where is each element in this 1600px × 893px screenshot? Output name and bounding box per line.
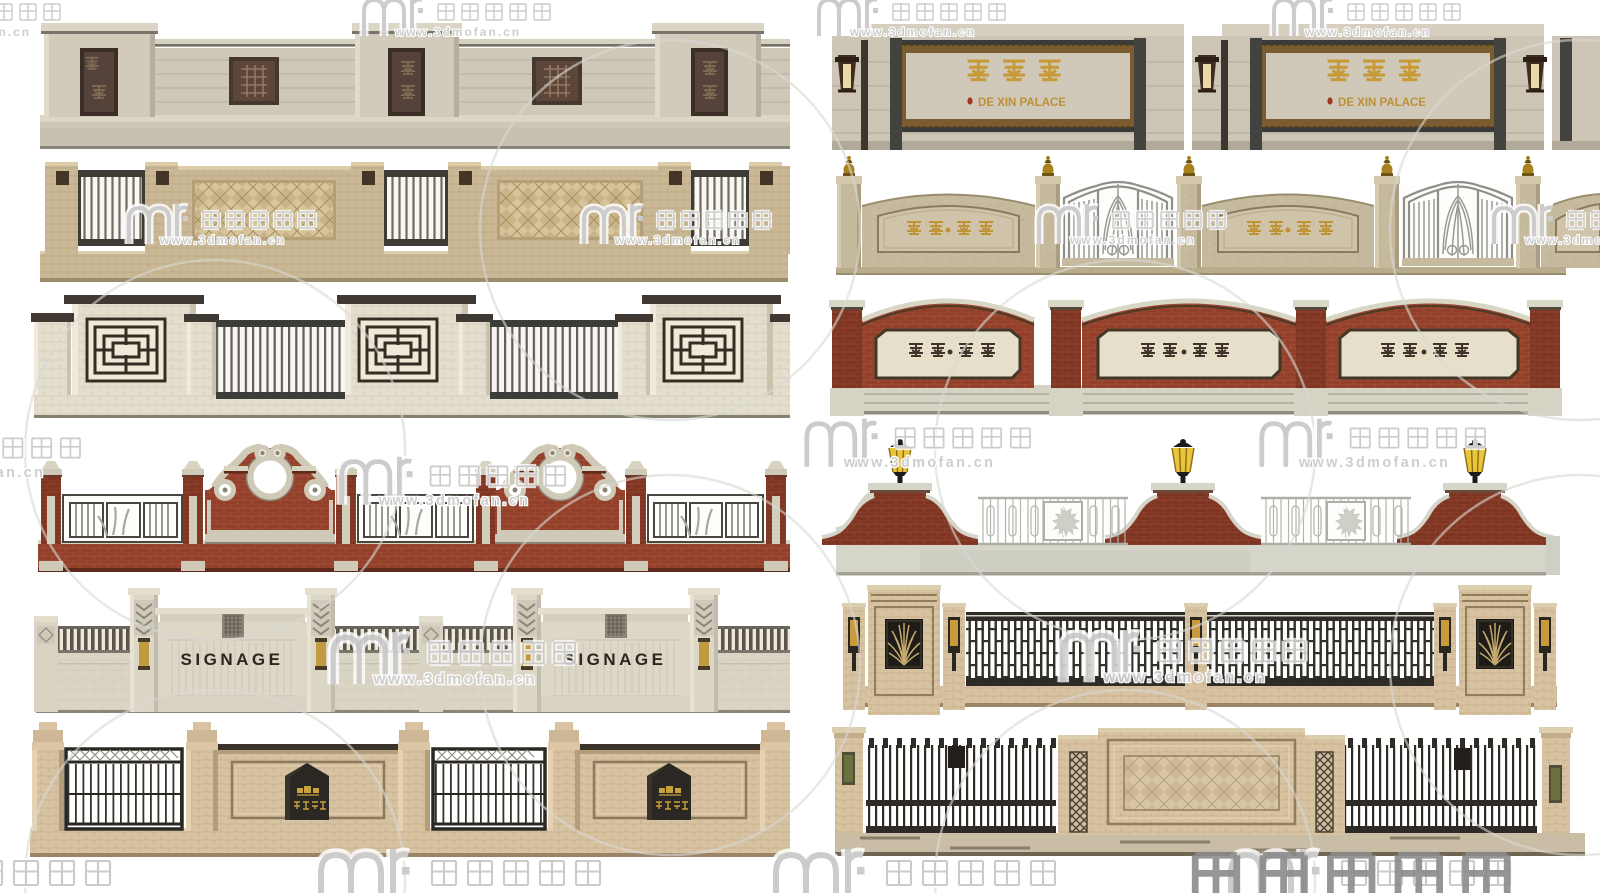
svg-text:SIGNAGE: SIGNAGE [181, 650, 284, 669]
svg-text:DE XIN PALACE: DE XIN PALACE [1338, 97, 1426, 109]
svg-text:SIGNAGE: SIGNAGE [564, 650, 667, 669]
svg-text:DE XIN PALACE: DE XIN PALACE [978, 97, 1066, 109]
